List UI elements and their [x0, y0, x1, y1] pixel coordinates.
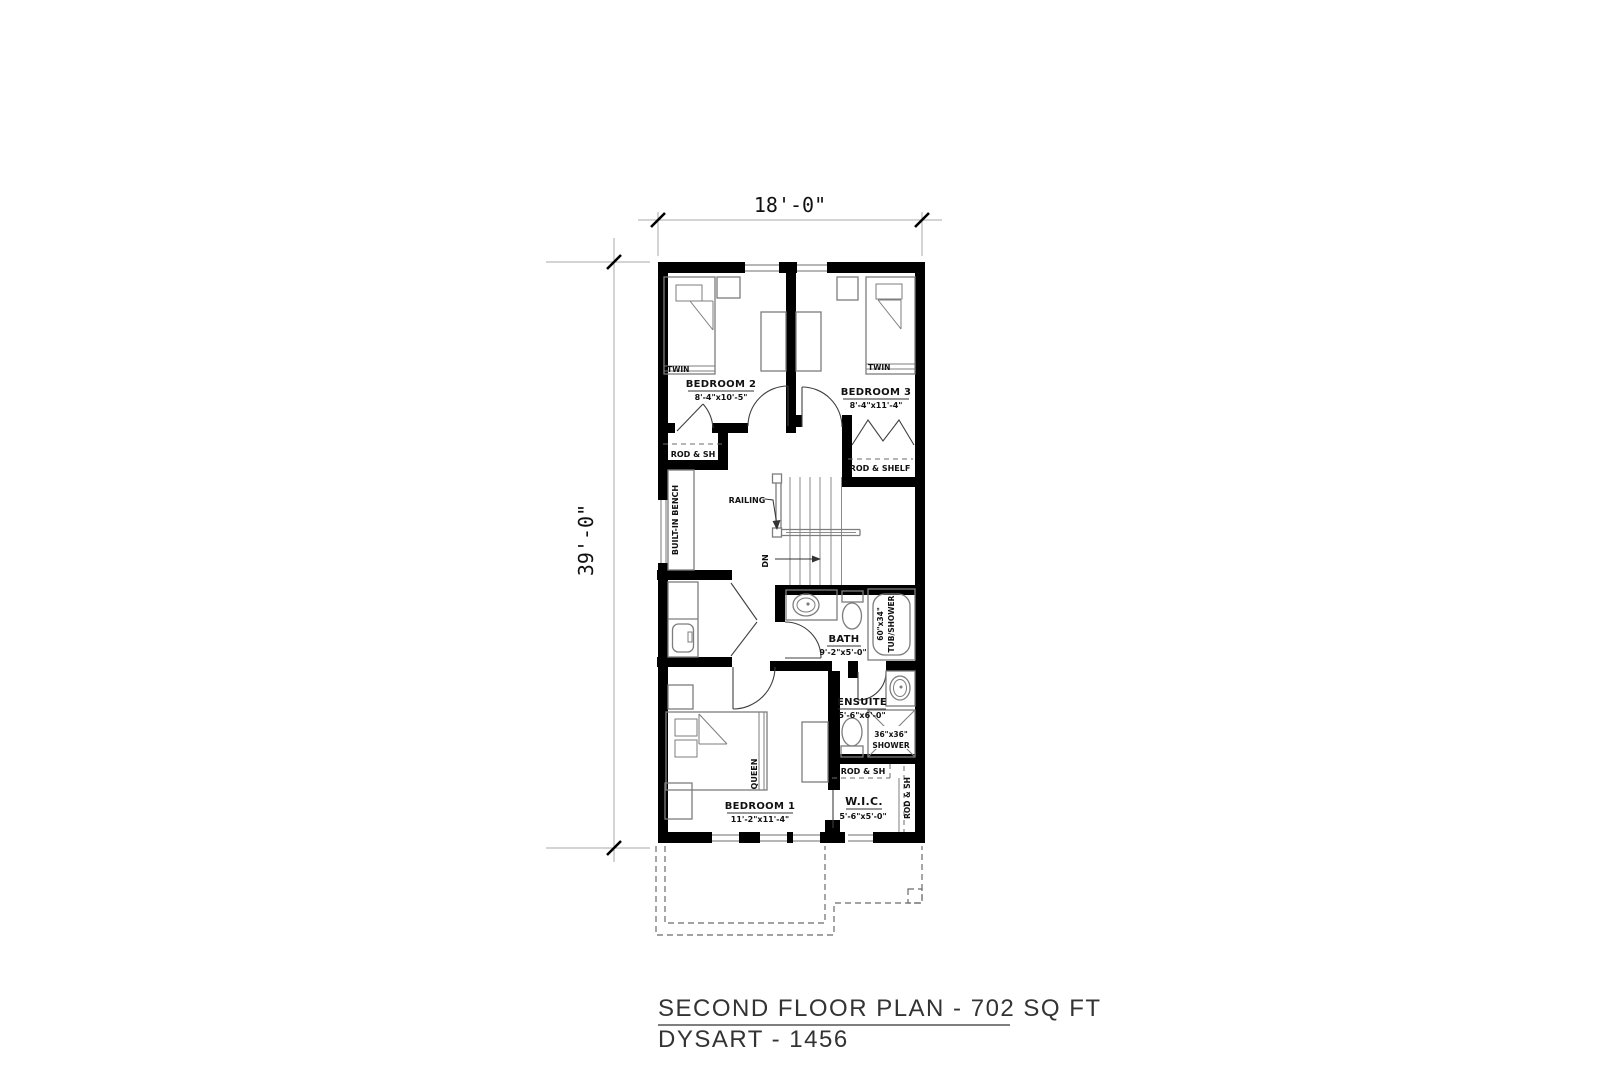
queen-label: QUEEN	[750, 759, 759, 790]
bath-sink	[793, 594, 819, 616]
bedroom3-furniture	[796, 277, 915, 374]
bedroom3-closet-bifold-doors	[852, 420, 914, 445]
stair-railing	[782, 530, 860, 536]
wic-label: W.I.C.	[845, 795, 883, 808]
down-label: DN	[761, 554, 770, 567]
bedroom1-furniture	[665, 685, 828, 819]
sheet-title: SECOND FLOOR PLAN - 702 SQ FT	[658, 995, 1102, 1022]
bath-size: 9'-2"x5'-0"	[819, 648, 866, 657]
floor-plan-sheet: 18'-0" 39'-0"	[0, 0, 1600, 1067]
bedroom1-door	[733, 667, 775, 709]
bedroom2-label: BEDROOM 2	[686, 379, 757, 390]
bedroom1-label: BEDROOM 1	[725, 801, 796, 812]
bedroom2-furniture	[664, 277, 786, 374]
bedroom3-size: 8'-4"x11'-4"	[850, 401, 903, 410]
stacked-washer-dryer	[668, 582, 698, 657]
dimension-height-label: 39'-0"	[574, 504, 598, 576]
dresser-bedroom2	[761, 312, 786, 371]
twin-label-left: TWIN	[667, 365, 689, 374]
plan-name: DYSART - 1456	[658, 1026, 849, 1053]
twin-label-right: TWIN	[868, 363, 890, 372]
bedroom2-size: 8'-4"x10'-5"	[695, 393, 748, 402]
nightstand-bedroom2	[717, 277, 740, 298]
railing-post-top	[773, 474, 782, 483]
dimension-width-label: 18'-0"	[754, 193, 826, 217]
down-arrow	[775, 556, 821, 563]
dresser-bedroom3	[796, 312, 821, 371]
roof-outline-below	[656, 846, 922, 935]
bath-toilet	[842, 591, 863, 629]
ensuite-toilet	[841, 718, 863, 757]
tub-size-label: 60"x34"	[876, 607, 885, 641]
twin-bed-left	[664, 277, 715, 374]
title-block: SECOND FLOOR PLAN - 702 SQ FT DYSART - 1…	[658, 995, 1102, 1053]
closet3-rod-label: ROD & SHELF	[850, 464, 911, 473]
bedroom3-label: BEDROOM 3	[841, 387, 912, 398]
bath-door	[785, 622, 821, 658]
floor-plan-drawing: 18'-0" 39'-0"	[0, 0, 1600, 1067]
ensuite-sink	[886, 671, 915, 706]
ensuite-label: ENSUITE	[837, 697, 887, 708]
shower-size-label: 36"x36"	[874, 730, 908, 739]
dimension-top: 18'-0"	[638, 193, 942, 256]
staircase: DN	[761, 474, 860, 585]
wic-rod-side-label: ROD & SH	[903, 777, 912, 819]
shower-label: SHOWER	[872, 741, 909, 750]
bath-label: BATH	[829, 634, 860, 645]
tub-label: TUB/SHOWER	[887, 595, 896, 652]
railing-callout	[765, 499, 781, 530]
wic-size: 5'-6"x5'-0"	[839, 812, 886, 821]
nightstand-bedroom3	[837, 277, 858, 300]
built-in-bench-label: BUILT-IN BENCH	[671, 485, 680, 555]
wic-rod-top-label: ROD & SH	[841, 767, 886, 776]
bedroom3-door	[802, 387, 842, 427]
ensuite-size: 5'-6"x6'-0"	[838, 711, 885, 720]
bedroom2-door	[748, 386, 788, 426]
nightstand-bedroom1	[668, 685, 693, 709]
bedroom1-size: 11'-2"x11'-4"	[731, 815, 789, 824]
dresser-bedroom1-east	[802, 722, 828, 782]
railing-label: RAILING	[729, 496, 766, 505]
dresser-bedroom1-south	[665, 783, 692, 819]
dimension-left: 39'-0"	[546, 238, 650, 862]
laundry-double-doors	[731, 583, 757, 656]
bedroom2-closet-door	[677, 404, 713, 431]
ensuite-door	[858, 672, 886, 700]
twin-bed-right	[866, 277, 915, 374]
closet2-rod-label: ROD & SH	[671, 450, 716, 459]
